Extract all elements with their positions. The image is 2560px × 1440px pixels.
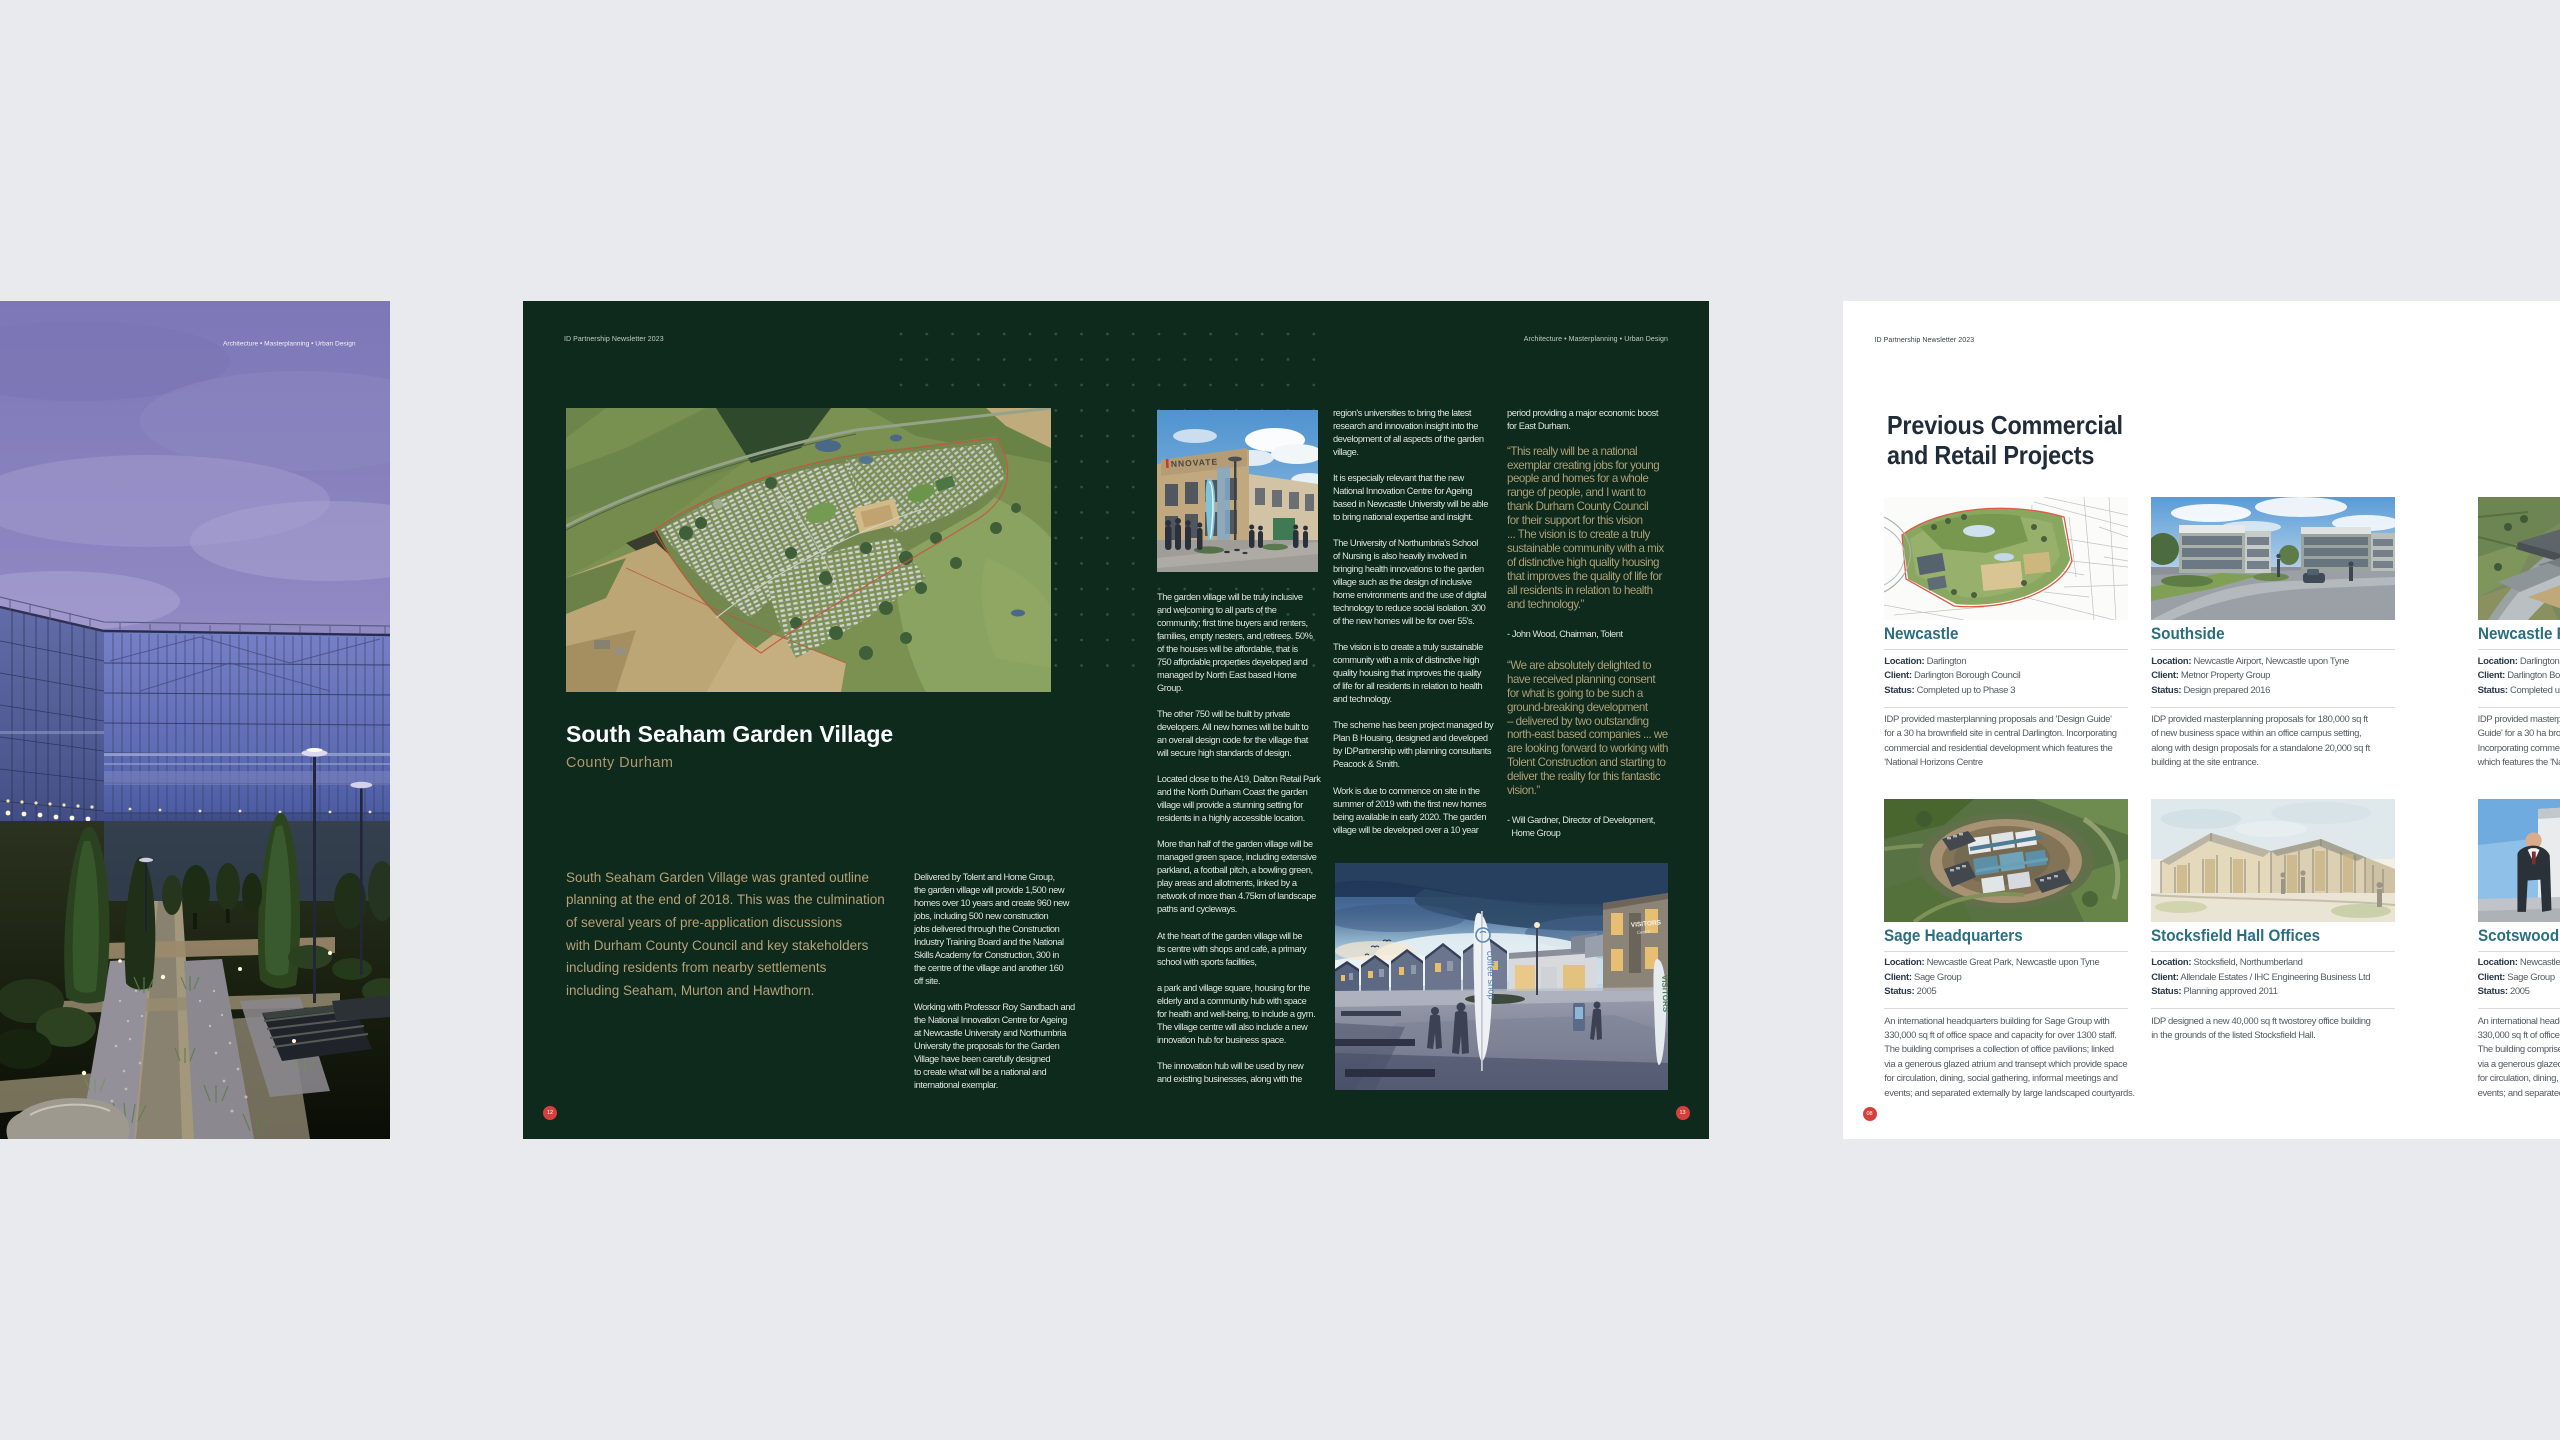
svg-text:coffee shop: coffee shop: [1484, 951, 1497, 1000]
svg-text:VISITORS: VISITORS: [1660, 975, 1668, 1013]
svg-text:Architecture • Masterplanning: Architecture • Masterplanning • Urban De…: [223, 340, 356, 347]
